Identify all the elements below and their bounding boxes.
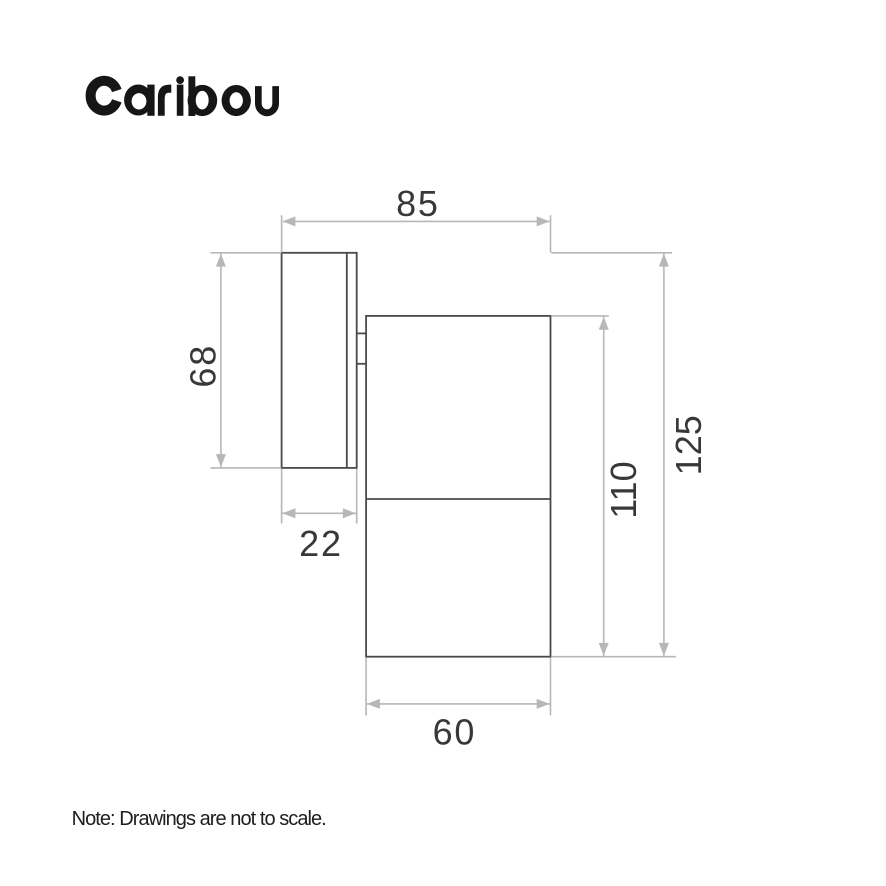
svg-text:125: 125 — [668, 415, 709, 475]
svg-text:85: 85 — [396, 183, 440, 224]
svg-text:Note: Drawings are not to scal: Note: Drawings are not to scale. — [72, 808, 326, 830]
svg-text:110: 110 — [603, 461, 644, 518]
svg-text:22: 22 — [299, 523, 343, 564]
svg-text:60: 60 — [433, 712, 477, 753]
svg-text:68: 68 — [182, 344, 223, 388]
